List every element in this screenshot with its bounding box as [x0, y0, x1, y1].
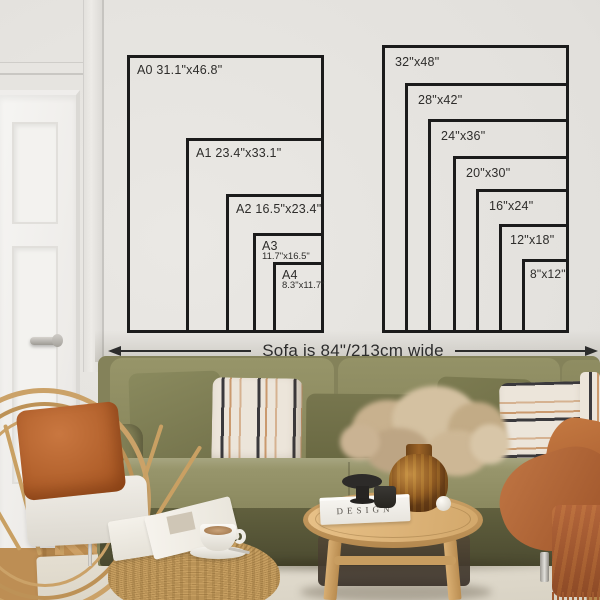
pillow-rust — [16, 401, 127, 501]
door-panel — [12, 122, 58, 224]
size-frame-a3-dimensions: 11.7"x16.5" — [256, 251, 321, 262]
door-handle-base — [52, 334, 63, 347]
cup-handle — [233, 529, 246, 544]
size-frame-a1-label: A1 23.4"x33.1" — [189, 141, 321, 160]
size-frame-20x30-label: 20"x30" — [456, 159, 566, 180]
dried-bouquet — [470, 424, 510, 464]
size-frame-a0-label: A0 31.1"x46.8" — [130, 58, 321, 77]
size-frame-16x24-label: 16"x24" — [479, 192, 566, 213]
size-frame-a4-dimensions: 8.3"x11.7" — [276, 280, 321, 291]
coffee-surface — [204, 526, 232, 535]
throw-blanket-fringe — [552, 592, 600, 600]
size-frame-32x48-label: 32"x48" — [385, 48, 566, 69]
wall-pilaster — [83, 0, 104, 372]
pillow-striped — [211, 377, 303, 467]
arrow-line — [455, 350, 585, 352]
throw-blanket — [552, 505, 600, 597]
sofa-width-label: Sofa is 84"/213cm wide — [262, 341, 443, 361]
sofa-leg — [540, 552, 549, 582]
arrow-left-icon — [108, 346, 121, 356]
size-frame-28x42-label: 28"x42" — [408, 86, 566, 107]
arrow-line — [121, 350, 251, 352]
size-frame-24x36-label: 24"x36" — [431, 122, 566, 143]
decor-sphere — [436, 496, 451, 511]
sofa-width-arrow: Sofa is 84"/213cm wide — [108, 342, 598, 360]
size-frame-8x12: 8"x12" — [522, 259, 569, 333]
size-frame-a4: A4 8.3"x11.7" — [273, 262, 324, 333]
black-pedestal-bowl — [350, 498, 375, 504]
size-frame-8x12-label: 8"x12" — [525, 262, 566, 281]
wall-molding — [0, 62, 84, 75]
size-guide-scene: DESIGN A0 31.1"x46.8" A1 23.4"x33.1" A2 … — [0, 0, 600, 600]
table-stretcher — [334, 556, 456, 565]
arrow-right-icon — [585, 346, 598, 356]
size-frame-12x18-label: 12"x18" — [502, 227, 566, 247]
size-frame-a2-label: A2 16.5"x23.4" — [229, 197, 321, 216]
dried-bouquet — [340, 424, 380, 460]
black-cup — [374, 486, 396, 508]
